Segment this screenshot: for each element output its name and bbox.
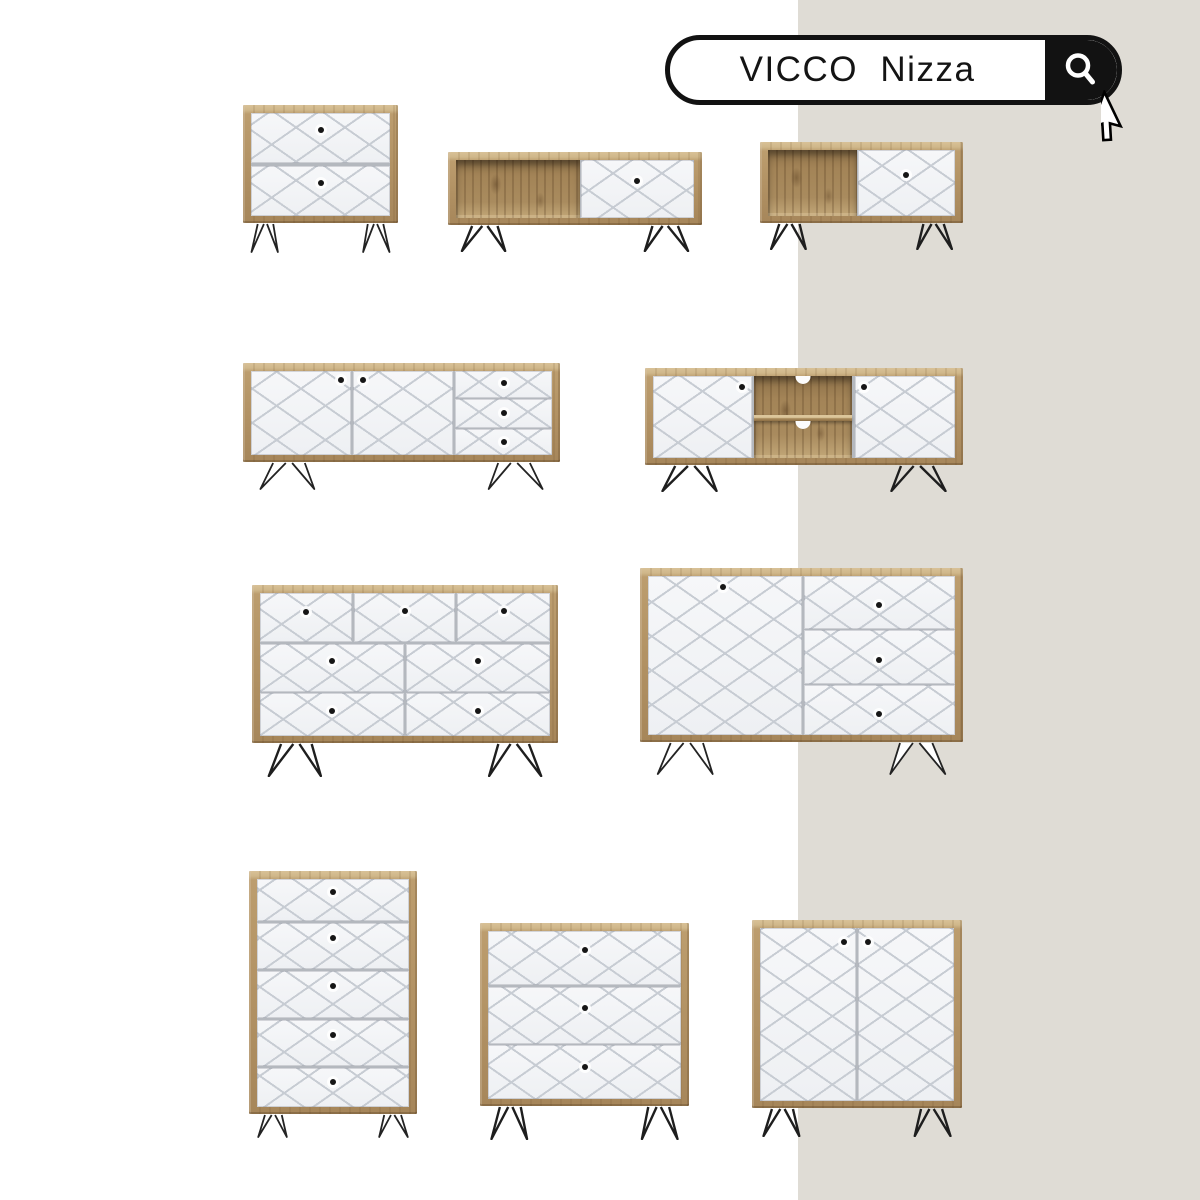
door-panel bbox=[653, 376, 752, 458]
chest-3-drawers-body bbox=[480, 923, 689, 1106]
drawer-panel bbox=[455, 429, 552, 455]
hairpin-legs bbox=[252, 743, 558, 777]
knob bbox=[501, 410, 507, 416]
knob bbox=[501, 380, 507, 386]
drawer-panel bbox=[260, 593, 352, 642]
knob bbox=[739, 384, 745, 390]
drawer-panel bbox=[804, 630, 955, 683]
hairpin-legs bbox=[752, 1108, 962, 1137]
knob bbox=[582, 947, 588, 953]
front-area bbox=[260, 593, 550, 736]
magnifier-icon bbox=[1063, 52, 1099, 88]
knob bbox=[876, 711, 882, 717]
drawer-panel bbox=[488, 987, 681, 1044]
chest-7-drawers-body bbox=[252, 585, 558, 743]
cable-hole bbox=[796, 376, 811, 384]
chest-3-drawers bbox=[480, 923, 689, 1140]
drawer-panel bbox=[488, 1045, 681, 1099]
front-area bbox=[257, 879, 409, 1107]
knob bbox=[330, 889, 336, 895]
sideboard-1-door-3-drawers-body bbox=[640, 568, 963, 742]
chest-7-drawers bbox=[252, 585, 558, 777]
drawer-panel bbox=[804, 685, 955, 735]
coffee-table-open-shelf-drawer bbox=[448, 152, 702, 252]
drawer-panel bbox=[257, 923, 409, 969]
drawer-panel bbox=[257, 879, 409, 921]
tv-lowboard-2-doors-open-shelves-body bbox=[645, 368, 963, 465]
cabinet-2-doors bbox=[752, 920, 962, 1137]
knob bbox=[876, 602, 882, 608]
product-collage: VICCO Nizza bbox=[0, 0, 1200, 1200]
knob bbox=[330, 935, 336, 941]
drawer-panel bbox=[455, 371, 552, 398]
knob bbox=[501, 608, 507, 614]
bedside-table-2-drawers-body bbox=[243, 105, 398, 223]
open-compartment bbox=[456, 160, 580, 218]
knob bbox=[330, 983, 336, 989]
front-area bbox=[488, 931, 681, 1099]
knob bbox=[475, 658, 481, 664]
drawer-panel bbox=[406, 693, 550, 736]
knob bbox=[303, 609, 309, 615]
drawer-panel bbox=[354, 593, 455, 642]
knob bbox=[720, 584, 726, 590]
knob bbox=[876, 657, 882, 663]
drawer-panel bbox=[251, 113, 390, 163]
hairpin-legs bbox=[249, 1114, 417, 1138]
drawer-panel bbox=[457, 593, 550, 642]
door-panel bbox=[648, 576, 802, 735]
front-area bbox=[456, 160, 694, 218]
drawer-panel bbox=[455, 399, 552, 428]
front-area bbox=[648, 576, 955, 735]
hairpin-legs bbox=[243, 223, 398, 253]
search-input[interactable]: VICCO Nizza bbox=[670, 40, 1045, 100]
sideboard-2-doors-3-drawers bbox=[243, 363, 560, 490]
drawer-panel bbox=[260, 644, 404, 692]
knob bbox=[903, 172, 909, 178]
drawer-panel bbox=[257, 1068, 409, 1107]
drawer-panel bbox=[488, 931, 681, 985]
front-area bbox=[653, 376, 955, 458]
knob bbox=[329, 708, 335, 714]
knob bbox=[318, 180, 324, 186]
knob bbox=[329, 658, 335, 664]
drawer-panel bbox=[257, 971, 409, 1018]
knob bbox=[501, 439, 507, 445]
tall-chest-5-drawers bbox=[249, 871, 417, 1138]
open-compartment bbox=[768, 150, 857, 216]
sideboard-1-door-3-drawers bbox=[640, 568, 963, 775]
knob bbox=[861, 384, 867, 390]
coffee-table-open-shelf-drawer-body bbox=[448, 152, 702, 225]
drawer-panel bbox=[257, 1020, 409, 1066]
drawer-panel bbox=[858, 150, 955, 216]
knob bbox=[841, 939, 847, 945]
knob bbox=[582, 1005, 588, 1011]
door-panel bbox=[858, 928, 954, 1101]
hairpin-legs bbox=[645, 465, 963, 492]
knob bbox=[475, 708, 481, 714]
door-panel bbox=[855, 376, 955, 458]
cabinet-2-doors-body bbox=[752, 920, 962, 1108]
front-area bbox=[760, 928, 954, 1101]
tv-lowboard-2-doors-open-shelves bbox=[645, 368, 963, 492]
front-area bbox=[251, 371, 552, 455]
mouse-cursor-icon bbox=[1101, 90, 1165, 158]
hairpin-legs bbox=[760, 223, 963, 250]
hairpin-legs bbox=[640, 742, 963, 775]
front-area bbox=[251, 113, 390, 216]
sideboard-2-doors-3-drawers-body bbox=[243, 363, 560, 462]
cable-hole bbox=[796, 421, 811, 429]
drawer-panel bbox=[581, 160, 694, 218]
tall-chest-5-drawers-body bbox=[249, 871, 417, 1114]
knob bbox=[330, 1079, 336, 1085]
knob bbox=[634, 178, 640, 184]
knob bbox=[360, 377, 366, 383]
shelf bbox=[754, 415, 852, 422]
knob bbox=[865, 939, 871, 945]
hairpin-legs bbox=[448, 225, 702, 252]
hairpin-legs bbox=[480, 1106, 689, 1140]
open-compartment bbox=[754, 376, 852, 458]
door-panel bbox=[353, 371, 453, 455]
drawer-panel bbox=[406, 644, 550, 692]
knob bbox=[582, 1064, 588, 1070]
door-panel bbox=[251, 371, 351, 455]
drawer-panel bbox=[804, 576, 955, 629]
coffee-table-open-shelf-drawer-small-body bbox=[760, 142, 963, 223]
knob bbox=[402, 608, 408, 614]
bedside-table-2-drawers bbox=[243, 105, 398, 253]
front-area bbox=[768, 150, 955, 216]
knob bbox=[318, 127, 324, 133]
hairpin-legs bbox=[243, 462, 560, 490]
coffee-table-open-shelf-drawer-small bbox=[760, 142, 963, 250]
knob bbox=[330, 1032, 336, 1038]
drawer-panel bbox=[260, 693, 404, 736]
knob bbox=[338, 377, 344, 383]
drawer-panel bbox=[251, 166, 390, 216]
search-bar[interactable]: VICCO Nizza bbox=[665, 35, 1122, 105]
door-panel bbox=[760, 928, 856, 1101]
